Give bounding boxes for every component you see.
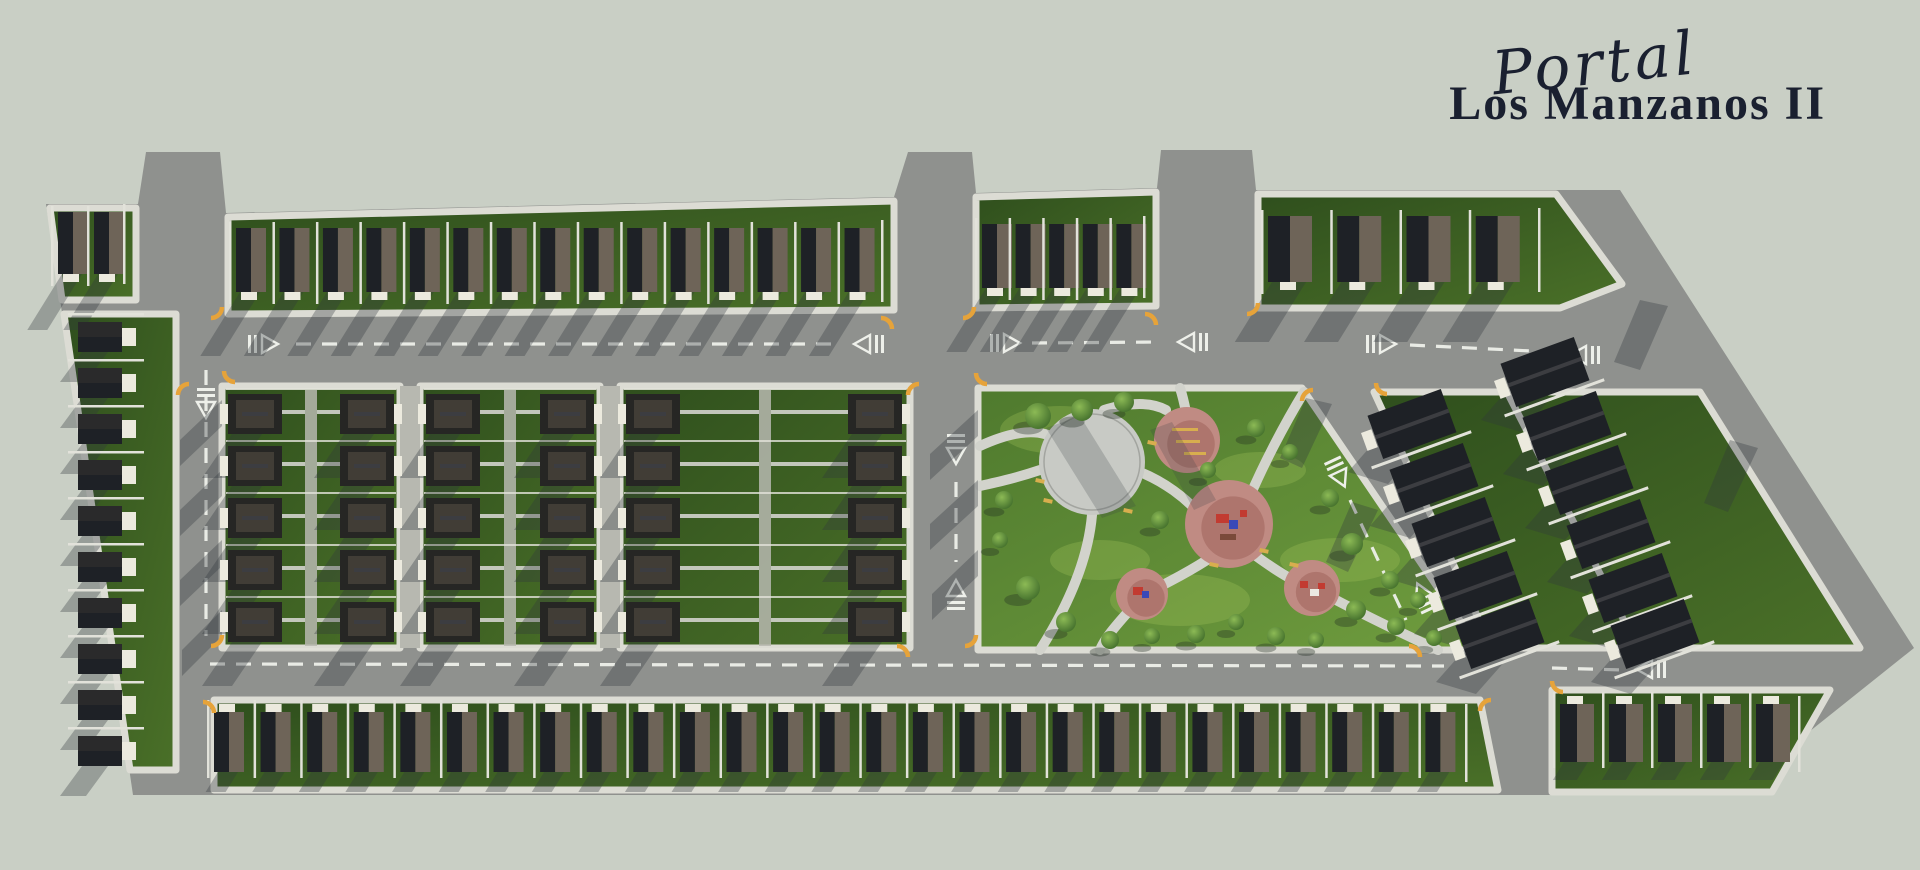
house-ridge bbox=[862, 412, 888, 416]
play-equipment bbox=[1216, 514, 1229, 523]
lot-wall bbox=[707, 222, 710, 304]
house-roof bbox=[323, 228, 338, 292]
lot-wall bbox=[68, 405, 144, 408]
house-ridge bbox=[862, 464, 888, 468]
house-porch bbox=[618, 560, 626, 580]
house-roof bbox=[1440, 712, 1455, 772]
house-porch bbox=[122, 742, 136, 760]
house-roof bbox=[599, 228, 614, 292]
lot-wall bbox=[1092, 700, 1095, 778]
lot-path bbox=[680, 514, 759, 518]
play-equipment bbox=[1142, 591, 1149, 598]
house-roof bbox=[1609, 704, 1626, 762]
lot-wall bbox=[446, 222, 449, 304]
play-equipment bbox=[1133, 587, 1143, 595]
lot-fence bbox=[226, 388, 396, 390]
lot-wall bbox=[1109, 218, 1112, 300]
house-roof bbox=[1053, 712, 1068, 772]
play-equipment bbox=[1310, 589, 1319, 596]
house-porch bbox=[122, 420, 136, 438]
tree-shadow bbox=[1297, 648, 1315, 656]
house-roof bbox=[555, 712, 570, 772]
block-center-alley bbox=[759, 390, 771, 646]
house-porch bbox=[1121, 288, 1137, 296]
house-porch bbox=[1349, 282, 1365, 290]
house-porch bbox=[1419, 282, 1435, 290]
lot-wall bbox=[1232, 700, 1235, 778]
lot-path bbox=[480, 462, 504, 466]
house-ridge bbox=[354, 620, 380, 624]
tree bbox=[1341, 533, 1363, 555]
house-roof bbox=[462, 712, 477, 772]
lot-wall bbox=[487, 700, 490, 778]
house-roof bbox=[555, 228, 570, 292]
house-roof bbox=[1756, 704, 1773, 762]
house-porch bbox=[122, 696, 136, 714]
house-porch bbox=[806, 292, 822, 300]
lot-wall bbox=[620, 222, 623, 304]
house-porch bbox=[732, 704, 748, 712]
house-porch bbox=[592, 704, 608, 712]
lot-path bbox=[771, 410, 848, 414]
lot-wall bbox=[999, 700, 1002, 778]
lot-wall bbox=[1469, 210, 1472, 294]
house-roof bbox=[410, 228, 425, 292]
house-porch bbox=[1337, 704, 1353, 712]
house-roof bbox=[1429, 216, 1451, 282]
tree bbox=[1101, 631, 1119, 649]
lot-wall bbox=[68, 451, 144, 454]
house-roof bbox=[671, 228, 686, 292]
house-roof bbox=[773, 228, 788, 292]
house-porch bbox=[964, 704, 980, 712]
house-roof bbox=[845, 228, 860, 292]
house-roof bbox=[322, 712, 337, 772]
tree bbox=[992, 532, 1008, 548]
house-ridge bbox=[554, 516, 580, 520]
lot-path bbox=[480, 514, 504, 518]
lot-wall bbox=[881, 220, 884, 302]
house-roof bbox=[1254, 712, 1269, 772]
house-ridge bbox=[554, 568, 580, 572]
house-roof bbox=[251, 228, 266, 292]
house-porch bbox=[589, 292, 605, 300]
house-roof bbox=[58, 212, 73, 274]
play-equipment bbox=[1240, 510, 1247, 517]
house-roof bbox=[1379, 712, 1394, 772]
house-porch bbox=[1058, 704, 1074, 712]
house-porch bbox=[122, 466, 136, 484]
house-porch bbox=[415, 292, 431, 300]
tree bbox=[1151, 511, 1169, 529]
lot-wall bbox=[1139, 700, 1142, 778]
lot-wall bbox=[673, 700, 676, 778]
lot-path bbox=[480, 618, 504, 622]
house-roof bbox=[1407, 216, 1429, 282]
house-roof bbox=[1394, 712, 1409, 772]
house-porch bbox=[594, 508, 602, 528]
house-porch bbox=[594, 404, 602, 424]
house-roof bbox=[714, 228, 729, 292]
house-porch bbox=[825, 704, 841, 712]
house-roof bbox=[294, 228, 309, 292]
house-ridge bbox=[242, 464, 268, 468]
house-porch bbox=[394, 404, 402, 424]
house-ridge bbox=[862, 568, 888, 572]
lot-wall bbox=[1553, 692, 1556, 768]
house-porch bbox=[312, 704, 328, 712]
house-roof bbox=[1286, 712, 1301, 772]
house-porch bbox=[1280, 282, 1296, 290]
house-roof bbox=[497, 228, 512, 292]
house-porch bbox=[594, 456, 602, 476]
house-porch bbox=[1714, 696, 1730, 704]
house-porch bbox=[499, 704, 515, 712]
house-porch bbox=[502, 292, 518, 300]
lot-wall bbox=[720, 700, 723, 778]
lot-wall bbox=[207, 700, 210, 778]
block-center-alley bbox=[504, 390, 516, 646]
house-porch bbox=[418, 612, 426, 632]
house-roof bbox=[773, 712, 788, 772]
house-porch bbox=[220, 508, 228, 528]
house-roof bbox=[78, 644, 122, 659]
house-roof bbox=[1347, 712, 1362, 772]
house-roof bbox=[307, 712, 322, 772]
lot-fence bbox=[624, 388, 906, 390]
lot-wall bbox=[1400, 210, 1403, 294]
house-ridge bbox=[554, 620, 580, 624]
tree-shadow bbox=[1399, 608, 1417, 616]
house-roof bbox=[540, 228, 555, 292]
lot-wall bbox=[1418, 700, 1421, 778]
house-roof bbox=[78, 368, 122, 383]
tree-shadow bbox=[981, 548, 999, 556]
house-roof bbox=[229, 712, 244, 772]
house-porch bbox=[918, 704, 934, 712]
house-porch bbox=[418, 560, 426, 580]
project-logo: Portal Los Manzanos II bbox=[1449, 36, 1826, 128]
lot-wall bbox=[1325, 700, 1328, 778]
house-porch bbox=[902, 404, 910, 424]
block-center-alley bbox=[305, 390, 317, 646]
house-porch bbox=[122, 328, 136, 346]
house-roof bbox=[686, 228, 701, 292]
house-ridge bbox=[640, 412, 666, 416]
house-roof bbox=[982, 224, 997, 288]
lot-wall bbox=[68, 635, 144, 638]
house-porch bbox=[418, 508, 426, 528]
house-roof bbox=[540, 712, 555, 772]
house-porch bbox=[1054, 288, 1070, 296]
house-porch bbox=[220, 404, 228, 424]
house-roof bbox=[648, 712, 663, 772]
house-roof bbox=[1773, 704, 1790, 762]
house-roof bbox=[381, 228, 396, 292]
lot-wall bbox=[1261, 210, 1264, 294]
tree bbox=[1187, 625, 1205, 643]
house-roof bbox=[1560, 704, 1577, 762]
lot-wall bbox=[68, 359, 144, 362]
lot-path bbox=[282, 410, 305, 414]
tree bbox=[1056, 612, 1076, 632]
house-porch bbox=[902, 508, 910, 528]
house-roof bbox=[1724, 704, 1741, 762]
tree bbox=[1381, 571, 1399, 589]
lot-wall bbox=[1651, 692, 1654, 768]
house-roof bbox=[1114, 712, 1129, 772]
site-plan-rendering bbox=[0, 0, 1920, 870]
house-ridge bbox=[354, 412, 380, 416]
play-equipment bbox=[1300, 581, 1308, 588]
house-ridge bbox=[440, 516, 466, 520]
house-roof bbox=[1021, 712, 1036, 772]
lot-path bbox=[282, 618, 305, 622]
lot-wall bbox=[68, 681, 144, 684]
house-roof bbox=[453, 228, 468, 292]
house-ridge bbox=[440, 568, 466, 572]
house-porch bbox=[219, 704, 235, 712]
lot-wall bbox=[68, 497, 144, 500]
lot-wall bbox=[68, 313, 144, 316]
lot-wall bbox=[1046, 700, 1049, 778]
tree-shadow bbox=[1133, 644, 1151, 652]
lot-wall bbox=[577, 222, 580, 304]
lot-path bbox=[680, 566, 759, 570]
play-equipment bbox=[1229, 520, 1238, 529]
lot-wall bbox=[1009, 218, 1012, 300]
house-porch bbox=[1021, 288, 1037, 296]
tree bbox=[1228, 614, 1244, 630]
tree-shadow bbox=[1217, 630, 1235, 638]
house-porch bbox=[1011, 704, 1027, 712]
house-roof bbox=[214, 712, 229, 772]
lot-wall bbox=[664, 222, 667, 304]
house-roof bbox=[78, 598, 122, 613]
tree bbox=[1114, 392, 1134, 412]
house-roof bbox=[1626, 704, 1643, 762]
tree bbox=[1144, 628, 1160, 644]
house-porch bbox=[632, 292, 648, 300]
lot-wall bbox=[906, 700, 909, 778]
house-roof bbox=[512, 228, 527, 292]
house-ridge bbox=[862, 620, 888, 624]
house-roof bbox=[913, 712, 928, 772]
house-roof bbox=[78, 414, 122, 429]
house-porch bbox=[220, 560, 228, 580]
house-porch bbox=[1104, 704, 1120, 712]
lot-wall bbox=[533, 222, 536, 304]
house-porch bbox=[458, 292, 474, 300]
house-roof bbox=[1658, 704, 1675, 762]
house-roof bbox=[881, 712, 896, 772]
house-porch bbox=[618, 612, 626, 632]
house-porch bbox=[1151, 704, 1167, 712]
house-roof bbox=[1498, 216, 1520, 282]
house-porch bbox=[1088, 288, 1104, 296]
lot-wall bbox=[794, 222, 797, 304]
house-porch bbox=[676, 292, 692, 300]
play-equipment bbox=[1220, 534, 1236, 540]
house-porch bbox=[1384, 704, 1400, 712]
house-roof bbox=[729, 228, 744, 292]
house-porch bbox=[220, 612, 228, 632]
house-porch bbox=[545, 704, 561, 712]
lot-path bbox=[516, 410, 540, 414]
house-porch bbox=[902, 456, 910, 476]
house-porch bbox=[394, 612, 402, 632]
lot-wall bbox=[1700, 692, 1703, 768]
lot-path bbox=[480, 566, 504, 570]
lot-wall bbox=[751, 222, 754, 304]
house-ridge bbox=[640, 620, 666, 624]
lot-path bbox=[680, 618, 759, 622]
house-roof bbox=[369, 712, 384, 772]
house-roof bbox=[1332, 712, 1347, 772]
tree bbox=[1016, 576, 1040, 600]
house-roof bbox=[1707, 704, 1724, 762]
house-roof bbox=[974, 712, 989, 772]
lot-wall bbox=[1143, 216, 1146, 298]
tree bbox=[995, 491, 1013, 509]
house-porch bbox=[359, 704, 375, 712]
lot-path bbox=[282, 514, 305, 518]
lot-fence bbox=[424, 388, 596, 390]
house-porch bbox=[1665, 696, 1681, 704]
house-porch bbox=[418, 456, 426, 476]
lot-wall bbox=[1042, 218, 1045, 300]
lot-wall bbox=[533, 700, 536, 778]
house-ridge bbox=[242, 516, 268, 520]
lot-wall bbox=[359, 222, 362, 304]
house-ridge bbox=[242, 412, 268, 416]
house-roof bbox=[1290, 216, 1312, 282]
house-roof bbox=[695, 712, 710, 772]
house-roof bbox=[866, 712, 881, 772]
lot-wall bbox=[1372, 700, 1375, 778]
house-roof bbox=[835, 712, 850, 772]
lot-wall bbox=[1185, 700, 1188, 778]
house-porch bbox=[122, 650, 136, 668]
house-roof bbox=[447, 712, 462, 772]
house-porch bbox=[63, 274, 79, 282]
house-roof bbox=[633, 712, 648, 772]
lot-wall bbox=[1465, 704, 1468, 782]
house-porch bbox=[871, 704, 887, 712]
tree bbox=[1200, 462, 1216, 478]
house-roof bbox=[366, 228, 381, 292]
house-roof bbox=[1192, 712, 1207, 772]
house-porch bbox=[902, 612, 910, 632]
lot-path bbox=[282, 566, 305, 570]
house-roof bbox=[1359, 216, 1381, 282]
lot-wall bbox=[626, 700, 629, 778]
house-porch bbox=[220, 456, 228, 476]
house-porch bbox=[394, 508, 402, 528]
house-porch bbox=[1616, 696, 1632, 704]
house-ridge bbox=[242, 568, 268, 572]
house-roof bbox=[1268, 216, 1290, 282]
lot-wall bbox=[254, 700, 257, 778]
lot-wall bbox=[87, 206, 90, 286]
house-ridge bbox=[440, 620, 466, 624]
house-porch bbox=[1488, 282, 1504, 290]
house-roof bbox=[425, 228, 440, 292]
house-roof bbox=[642, 228, 657, 292]
lot-path bbox=[480, 410, 504, 414]
lot-wall bbox=[300, 700, 303, 778]
house-roof bbox=[1161, 712, 1176, 772]
house-roof bbox=[468, 228, 483, 292]
house-porch bbox=[618, 508, 626, 528]
house-roof bbox=[1016, 224, 1031, 288]
house-roof bbox=[1337, 216, 1359, 282]
house-porch bbox=[545, 292, 561, 300]
lot-wall bbox=[440, 700, 443, 778]
lot-wall bbox=[1076, 218, 1079, 300]
lot-wall bbox=[51, 206, 54, 286]
lot-path bbox=[680, 410, 759, 414]
lot-wall bbox=[1538, 208, 1541, 292]
house-roof bbox=[1239, 712, 1254, 772]
lot-wall bbox=[1279, 700, 1282, 778]
house-porch bbox=[638, 704, 654, 712]
house-ridge bbox=[862, 516, 888, 520]
house-porch bbox=[719, 292, 735, 300]
tree bbox=[1267, 627, 1285, 645]
house-roof bbox=[587, 712, 602, 772]
house-porch bbox=[850, 292, 866, 300]
tree bbox=[1308, 632, 1324, 648]
house-roof bbox=[1116, 224, 1131, 288]
house-ridge bbox=[354, 516, 380, 520]
tree bbox=[1410, 592, 1426, 608]
tree-shadow bbox=[1256, 644, 1277, 653]
house-porch bbox=[778, 704, 794, 712]
house-roof bbox=[236, 228, 251, 292]
house-ridge bbox=[440, 464, 466, 468]
lot-wall bbox=[68, 543, 144, 546]
house-porch bbox=[284, 292, 300, 300]
house-roof bbox=[1146, 712, 1161, 772]
house-roof bbox=[1476, 216, 1498, 282]
tree bbox=[1025, 403, 1051, 429]
house-porch bbox=[371, 292, 387, 300]
tree-shadow bbox=[984, 508, 1005, 517]
house-ridge bbox=[640, 516, 666, 520]
house-roof bbox=[1049, 224, 1064, 288]
lot-wall bbox=[123, 204, 126, 284]
house-roof bbox=[415, 712, 430, 772]
house-ridge bbox=[354, 464, 380, 468]
house-porch bbox=[394, 456, 402, 476]
lot-wall bbox=[580, 700, 583, 778]
house-roof bbox=[788, 712, 803, 772]
lot-wall bbox=[1749, 692, 1752, 768]
lot-wall bbox=[1798, 696, 1801, 772]
house-porch bbox=[763, 292, 779, 300]
tree-shadow bbox=[1376, 634, 1397, 643]
lot-wall bbox=[838, 222, 841, 304]
house-porch bbox=[418, 404, 426, 424]
tree bbox=[1387, 617, 1405, 635]
house-roof bbox=[494, 712, 509, 772]
house-roof bbox=[627, 228, 642, 292]
house-porch bbox=[1291, 704, 1307, 712]
lot-wall bbox=[68, 727, 144, 730]
house-roof bbox=[1301, 712, 1316, 772]
house-porch bbox=[122, 558, 136, 576]
